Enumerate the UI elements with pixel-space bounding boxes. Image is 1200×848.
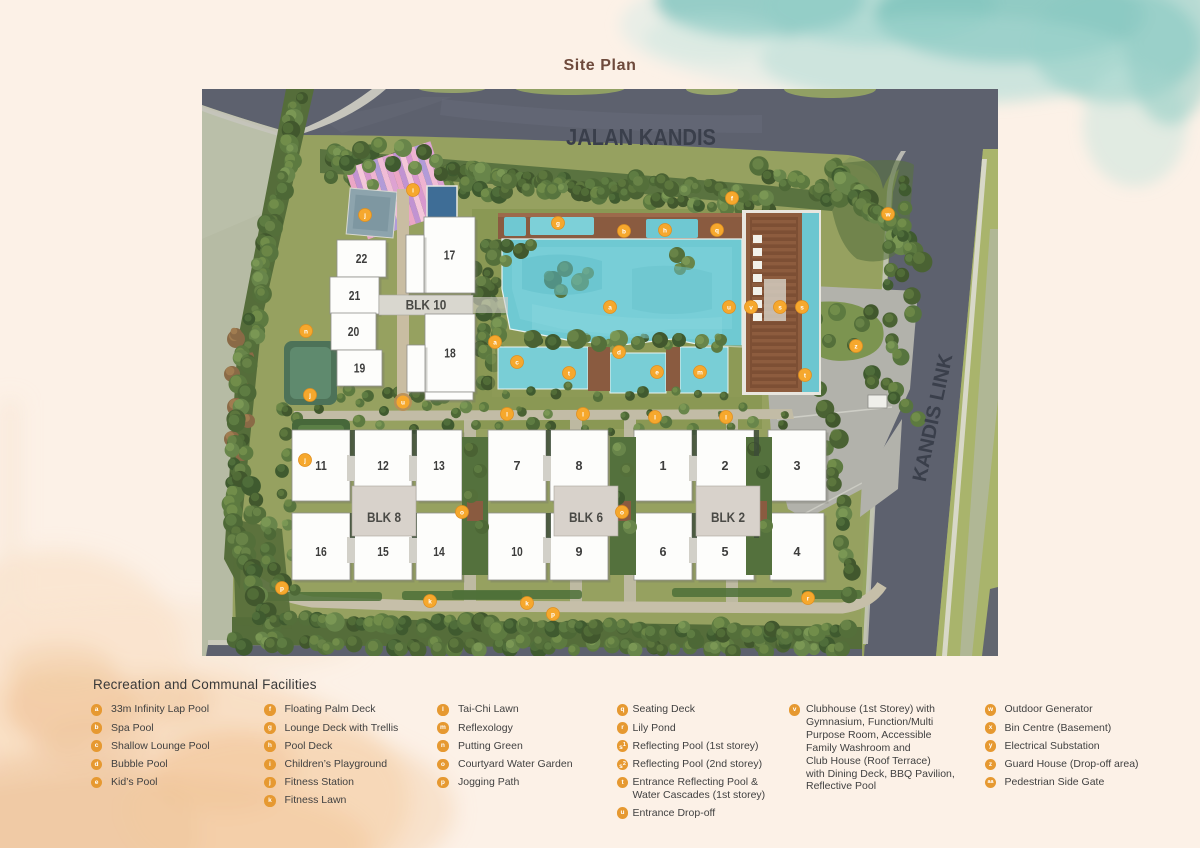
svg-text:16: 16 xyxy=(315,544,327,559)
svg-text:6: 6 xyxy=(660,544,667,559)
svg-text:b: b xyxy=(622,229,626,236)
svg-text:h: h xyxy=(663,228,667,235)
svg-text:l: l xyxy=(654,415,656,422)
svg-text:c: c xyxy=(515,360,519,367)
svg-text:12: 12 xyxy=(377,458,389,473)
svg-text:m: m xyxy=(697,370,703,377)
svg-text:3: 3 xyxy=(794,458,801,473)
svg-text:v: v xyxy=(749,305,753,312)
svg-text:BLK 8: BLK 8 xyxy=(367,510,401,525)
svg-text:20: 20 xyxy=(348,324,360,339)
svg-text:7: 7 xyxy=(514,458,521,473)
svg-text:a: a xyxy=(493,340,497,347)
svg-text:g: g xyxy=(556,221,560,228)
svg-text:15: 15 xyxy=(377,544,389,559)
svg-text:4: 4 xyxy=(794,544,802,559)
svg-text:2: 2 xyxy=(722,458,729,473)
svg-text:w: w xyxy=(884,212,891,219)
svg-text:8: 8 xyxy=(576,458,583,473)
svg-text:1: 1 xyxy=(660,458,667,473)
svg-text:q: q xyxy=(715,228,719,235)
svg-text:19: 19 xyxy=(354,361,366,376)
svg-text:s: s xyxy=(778,305,782,312)
svg-text:k: k xyxy=(428,599,432,606)
svg-text:JALAN KANDIS: JALAN KANDIS xyxy=(566,124,716,150)
svg-text:9: 9 xyxy=(576,544,583,559)
svg-text:BLK 2: BLK 2 xyxy=(711,510,745,525)
svg-text:p: p xyxy=(551,612,555,619)
svg-text:o: o xyxy=(460,510,464,517)
svg-text:5: 5 xyxy=(722,544,729,559)
svg-text:18: 18 xyxy=(444,346,456,361)
svg-text:10: 10 xyxy=(511,544,523,559)
svg-text:s: s xyxy=(800,305,804,312)
svg-text:14: 14 xyxy=(433,544,445,559)
svg-text:e: e xyxy=(655,370,659,377)
svg-text:l: l xyxy=(506,412,508,419)
svg-text:BLK 10: BLK 10 xyxy=(406,298,447,313)
svg-text:l: l xyxy=(725,415,727,422)
svg-text:k: k xyxy=(525,601,529,608)
svg-text:n: n xyxy=(304,329,308,336)
svg-text:21: 21 xyxy=(349,288,361,303)
svg-text:d: d xyxy=(617,350,621,357)
svg-text:17: 17 xyxy=(444,248,456,263)
svg-text:l: l xyxy=(582,412,584,419)
svg-text:13: 13 xyxy=(433,458,445,473)
svg-text:j: j xyxy=(363,213,366,220)
svg-text:u: u xyxy=(401,400,405,407)
svg-text:11: 11 xyxy=(315,458,327,473)
svg-text:i: i xyxy=(412,188,414,195)
svg-text:22: 22 xyxy=(356,251,368,266)
svg-text:o: o xyxy=(620,510,624,517)
svg-text:u: u xyxy=(727,305,731,312)
svg-text:p: p xyxy=(280,586,284,593)
svg-text:BLK 6: BLK 6 xyxy=(569,510,603,525)
svg-text:j: j xyxy=(308,393,311,400)
svg-text:a: a xyxy=(608,305,612,312)
svg-text:j: j xyxy=(303,458,306,465)
